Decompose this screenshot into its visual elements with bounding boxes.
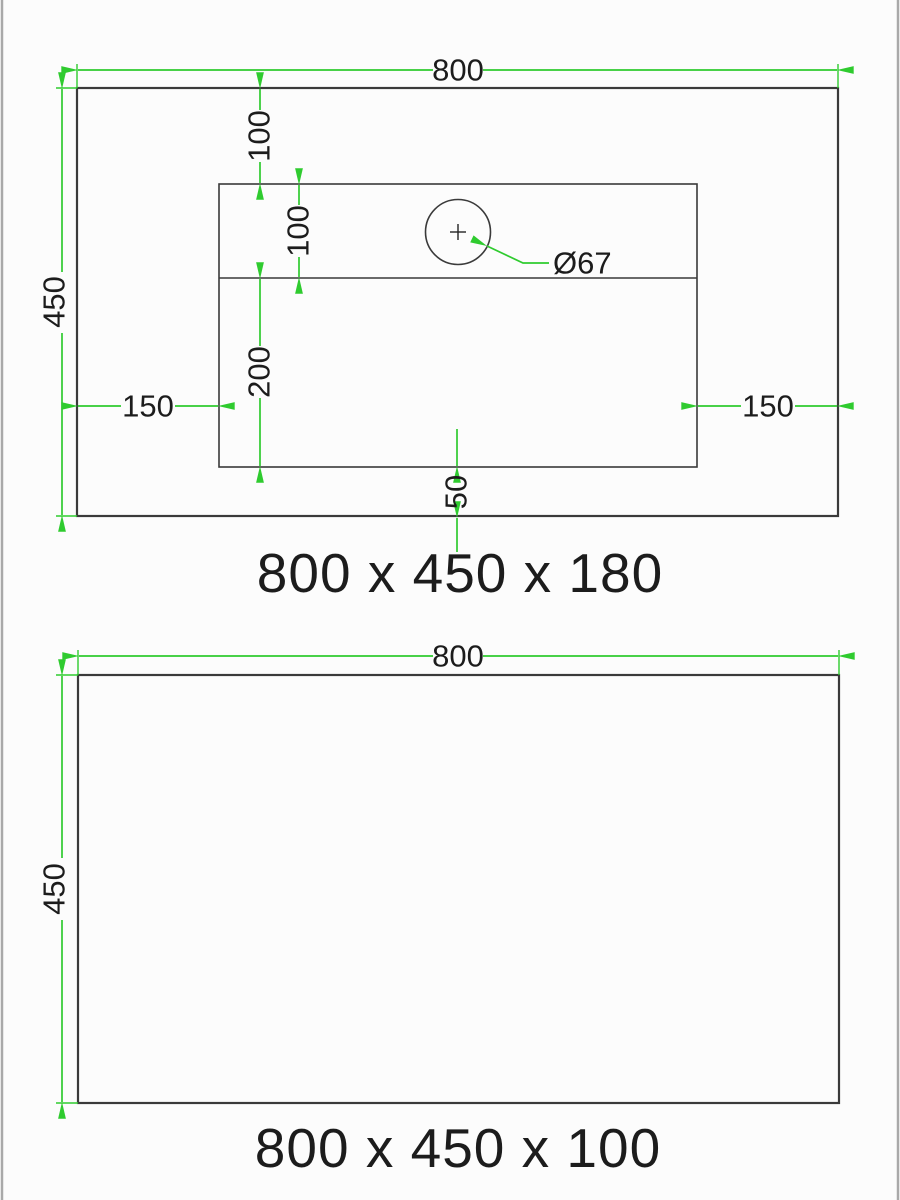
dim-top-width: 800: [77, 53, 838, 89]
dim-right-offset: 150: [698, 389, 837, 424]
dim-bottom-gap: 50: [439, 429, 474, 552]
dim-basin-depth: 200: [242, 279, 277, 466]
dim-left-offset: 150: [78, 389, 218, 424]
dim-label-top-height: 450: [37, 276, 72, 328]
faucet-hole-center-mark: [450, 224, 466, 240]
dim-basin-band: 100: [281, 185, 316, 277]
dim-label-left-offset: 150: [122, 389, 174, 424]
dim-basin-top-offset: 100: [242, 89, 277, 183]
top-view-title: 800 x 450 x 180: [257, 542, 663, 604]
dim-top-height: 450: [37, 88, 78, 516]
dim-label-top-width: 800: [432, 53, 484, 88]
dim-bottom-view-height: 450: [37, 675, 79, 1103]
drawing-canvas: 800 450 100 100: [0, 0, 900, 1200]
bottom-view-outline: [78, 675, 839, 1103]
dim-label-right-offset: 150: [742, 389, 794, 424]
dim-label-bottom-view-width: 800: [432, 639, 484, 674]
dim-bottom-view-width: 800: [78, 639, 839, 676]
top-view: 800 450 100 100: [37, 53, 839, 605]
dim-label-bottom-gap: 50: [439, 475, 474, 509]
dim-label-basin-band: 100: [281, 205, 316, 257]
bottom-view: 800 450 800 x 450 x 100: [37, 639, 840, 1180]
dim-label-basin-top-offset: 100: [242, 110, 277, 162]
technical-drawing-sheet: 800 450 100 100: [0, 0, 900, 1200]
bottom-view-title: 800 x 450 x 100: [255, 1117, 661, 1179]
dim-label-basin-depth: 200: [242, 346, 277, 398]
dim-label-bottom-view-height: 450: [37, 863, 72, 915]
hole-diameter-label: Ø67: [553, 246, 612, 281]
hole-diameter-leader: Ø67: [487, 246, 612, 281]
